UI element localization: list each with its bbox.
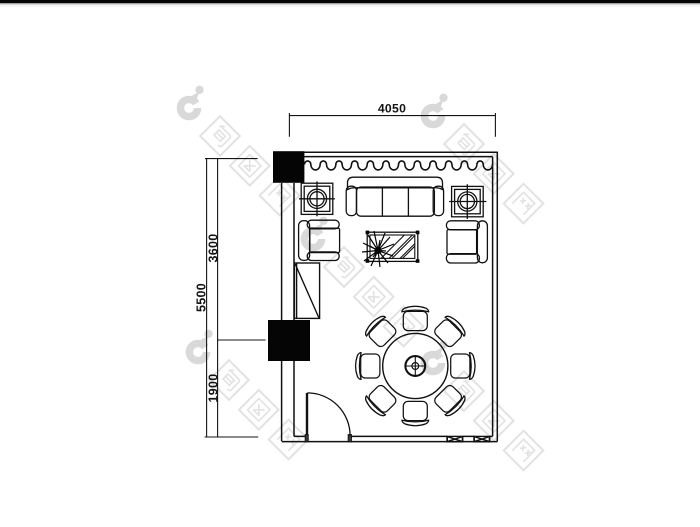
svg-text:3600: 3600: [207, 233, 221, 262]
svg-text:5500: 5500: [195, 283, 209, 312]
svg-text:4050: 4050: [378, 102, 406, 116]
svg-text:1900: 1900: [207, 373, 221, 402]
